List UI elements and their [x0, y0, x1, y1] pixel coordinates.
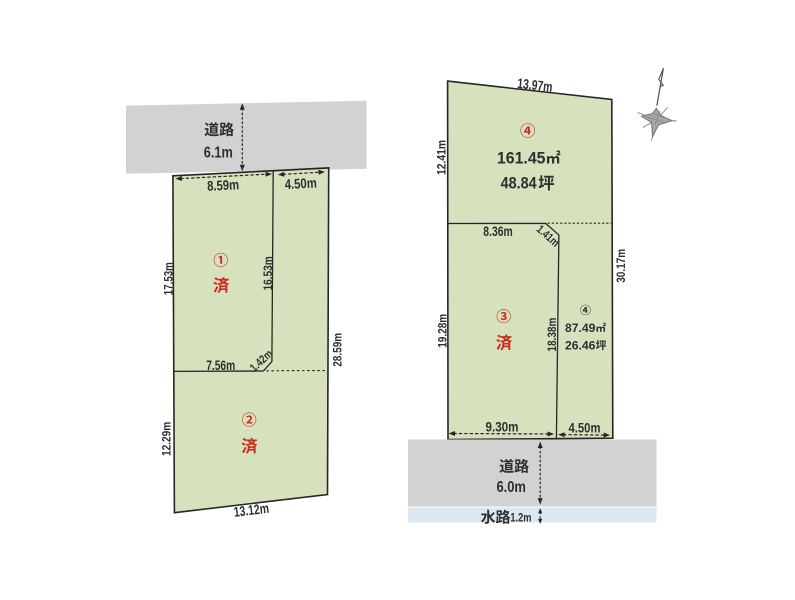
svg-text:4.50m: 4.50m — [284, 175, 317, 193]
svg-text:16.53m: 16.53m — [261, 256, 275, 290]
svg-text:6.0m: 6.0m — [496, 479, 526, 496]
svg-text:4.50m: 4.50m — [569, 420, 601, 436]
svg-text:8.59m: 8.59m — [207, 176, 240, 194]
svg-text:18.38m: 18.38m — [545, 318, 559, 352]
svg-text:12.41m: 12.41m — [435, 140, 449, 175]
svg-text:48.84: 48.84 — [501, 175, 538, 193]
svg-text:1.2m: 1.2m — [510, 511, 531, 525]
svg-text:30.17m: 30.17m — [614, 249, 628, 283]
svg-text:19.28m: 19.28m — [435, 314, 449, 348]
svg-text:17.53m: 17.53m — [161, 262, 175, 295]
svg-text:9.30m: 9.30m — [486, 419, 519, 435]
svg-text:26.46: 26.46 — [565, 339, 596, 353]
svg-text:8.36m: 8.36m — [483, 223, 512, 239]
svg-text:161.45: 161.45 — [497, 149, 546, 168]
svg-text:6.1m: 6.1m — [204, 145, 233, 162]
svg-text:7.56m: 7.56m — [206, 357, 235, 373]
svg-text:28.59m: 28.59m — [331, 333, 345, 367]
svg-text:87.49: 87.49 — [565, 321, 596, 335]
svg-text:12.29m: 12.29m — [159, 422, 173, 456]
